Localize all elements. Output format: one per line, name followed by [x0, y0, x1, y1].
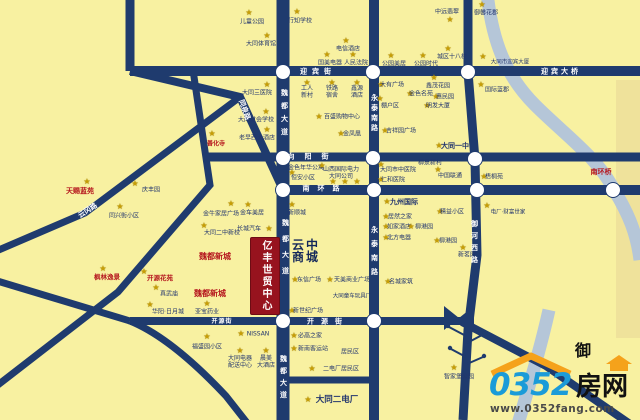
poi-label: 城区十八校: [437, 53, 467, 60]
poi-label: NISSAN: [247, 330, 270, 337]
poi-star-icon: ★: [245, 9, 252, 17]
poi-label: 华阳·日月城: [152, 308, 184, 315]
street-name-label: 魏都大道: [282, 219, 289, 283]
poi-label: 中国联通: [438, 172, 462, 179]
poi-star-icon: ★: [304, 396, 311, 404]
poi-star-icon: ★: [263, 32, 270, 40]
poi-star-icon: ★: [446, 16, 453, 24]
street-name-label: 迎宾街: [300, 69, 336, 76]
poi-label: 开源花苑: [147, 275, 173, 283]
city-map[interactable]: ★儿童公园★行知学校★大同体育馆★电信酒店★国美电器★人民法院★公园美居★公园时…: [0, 0, 640, 420]
street-name-label: 南环路: [303, 186, 348, 193]
poi-label: 魏都新城: [194, 289, 226, 299]
poi-label: 名城家筑: [389, 278, 413, 285]
poi-label: 鑫茂花园: [426, 82, 450, 89]
poi-label: 儿童公园: [240, 18, 264, 25]
poi-label: 大同市迎宾大厦: [491, 60, 530, 67]
poi-star-icon: ★: [263, 81, 270, 89]
logo-url: www.0352fang.com: [490, 403, 615, 415]
poi-star-icon: ★: [407, 223, 414, 231]
poi-label: 亚宝药业: [195, 308, 219, 315]
poi-label: 梧桐苑: [485, 173, 503, 180]
poi-label: 新顺城: [288, 209, 306, 216]
poi-star-icon: ★: [479, 53, 486, 61]
poi-label: 智家堡公园: [444, 373, 474, 380]
poi-star-icon: ★: [208, 130, 215, 138]
poi-label: 大同童车玩具厂: [333, 294, 372, 301]
poi-label: 同兴街小区: [109, 212, 139, 219]
poi-label: 人民法院: [344, 59, 368, 66]
poi-label: 新世纪广场: [293, 307, 323, 314]
poi-star-icon: ★: [323, 51, 330, 59]
poi-star-icon: ★: [419, 52, 426, 60]
poi-star-icon: ★: [326, 276, 333, 284]
street-name-label: 迎宾大桥: [541, 69, 581, 76]
yunzhong-mall-label: 云中商城: [292, 239, 320, 263]
poi-label: 大同三医院: [242, 89, 272, 96]
poi-label: 大同二中新校: [204, 229, 240, 236]
poi-star-icon: ★: [99, 265, 106, 273]
poi-star-icon: ★: [152, 284, 159, 292]
logo-word: 房网: [576, 374, 628, 400]
street-name-label: 永泰南路: [371, 226, 378, 282]
poi-label: 仁和医院: [381, 176, 405, 183]
poi-label: 真武庙: [160, 290, 178, 297]
poi-star-icon: ★: [450, 364, 457, 372]
poi-star-icon: ★: [308, 365, 315, 373]
poi-star-icon: ★: [227, 200, 234, 208]
poi-star-icon: ★: [483, 202, 490, 210]
poi-star-icon: ★: [203, 300, 210, 308]
poi-label: 大有广场: [380, 81, 404, 88]
poi-label: 金凤凰: [343, 130, 361, 137]
poi-label: 天美商业广场: [334, 276, 370, 283]
poi-label: 二电厂居民区: [323, 365, 359, 372]
poi-label: 北方电器: [387, 234, 411, 241]
poi-star-icon: ★: [290, 332, 297, 340]
poi-star-icon: ★: [203, 333, 210, 341]
logo-number: 0352: [489, 370, 571, 401]
poi-star-icon: ★: [237, 330, 244, 338]
poi-star-icon: ★: [430, 74, 437, 82]
poi-label: 金牛家居广场: [203, 210, 239, 217]
street-name-label: 魏都大道: [281, 89, 288, 141]
poi-label: 电厂·财富世家: [491, 210, 526, 217]
poi-star-icon: ★: [262, 108, 269, 116]
poi-star-icon: ★: [290, 345, 297, 353]
poi-star-icon: ★: [387, 52, 394, 60]
poi-label: 行知学校: [288, 17, 312, 24]
poi-label: 大同体育馆: [246, 40, 276, 47]
landmark-label: 亿丰世贸中心: [260, 240, 270, 312]
poi-star-icon: ★: [353, 178, 360, 186]
poi-label: 精益小区: [440, 208, 464, 215]
poi-label: 居民区: [341, 348, 359, 355]
poi-label: 福盛园小区: [192, 343, 222, 350]
poi-star-icon: ★: [293, 8, 300, 16]
poi-label: 国际蓝郡: [485, 86, 509, 93]
poi-label: 居然之家: [388, 213, 412, 220]
poi-label: 魏都新城: [199, 252, 231, 262]
poi-label: 新南客运站: [298, 345, 328, 352]
poi-label: 九州国际: [390, 198, 418, 206]
poi-star-icon: ★: [131, 180, 138, 188]
poi-label: 恒安小区: [291, 174, 315, 181]
poi-star-icon: ★: [477, 81, 484, 89]
poi-star-icon: ★: [349, 51, 356, 59]
poi-star-icon: ★: [265, 225, 272, 233]
poi-label: 吉祥园广场: [386, 127, 416, 134]
poi-label: 公园美居: [382, 60, 406, 67]
poi-label: 大同电器 配送中心: [228, 355, 252, 369]
street-name-label: 开源街: [307, 319, 349, 326]
poi-label: 枫林逸景: [94, 274, 120, 282]
poi-label: 大同一中: [441, 142, 469, 150]
poi-label: 棚户区: [381, 102, 399, 109]
poi-label: 东信广场: [297, 276, 321, 283]
poi-label: 大同市中医院: [380, 166, 416, 173]
poi-star-icon: ★: [342, 37, 349, 45]
poi-label: 金色名苑: [409, 90, 433, 97]
poi-label: 百盛购物中心: [324, 113, 360, 120]
poi-star-icon: ★: [444, 45, 451, 53]
street-name-label: 魏都大道: [280, 355, 287, 403]
poi-label: 惠民园: [436, 93, 454, 100]
poi-label: 柳港园: [439, 237, 457, 244]
poi-star-icon: ★: [315, 113, 322, 121]
poi-label: 铁路 宿舍: [326, 85, 338, 99]
poi-label: 金车美居: [240, 209, 264, 216]
poi-label: 中远翡翠: [435, 8, 459, 15]
poi-label: 柳港园: [415, 223, 433, 230]
poi-label: 南环桥: [591, 168, 612, 176]
poi-label: 庆丰园: [142, 186, 160, 193]
poi-star-icon: ★: [83, 178, 90, 186]
poi-label: 善化寺: [207, 140, 225, 147]
poi-label: 公园时代: [414, 60, 438, 67]
street-name-label: 向阳街: [288, 154, 339, 161]
poi-label: 天赐蓝苑: [66, 187, 94, 195]
poi-label: 鑫源 酒店: [351, 85, 363, 99]
poi-label: 御馨花郡: [474, 9, 498, 16]
poi-star-icon: ★: [262, 347, 269, 355]
street-name-label: 开源街: [211, 319, 232, 325]
site-logo: 0352 房网 www.0352fang.com: [486, 352, 640, 416]
yifeng-world-trade-center-box[interactable]: 亿丰世贸中心: [250, 237, 280, 315]
poi-label: 国美电器: [318, 59, 342, 66]
street-name-label: 御河西路: [471, 220, 478, 268]
poi-star-icon: ★: [116, 203, 123, 211]
poi-star-icon: ★: [478, 1, 485, 9]
street-name-label: 永泰南路: [371, 94, 378, 134]
poi-label: 老早西大酒店: [239, 134, 275, 141]
street-name-label: 云冈路: [77, 202, 98, 219]
poi-label: 长城汽车: [237, 225, 261, 232]
poi-label: 工人 新村: [301, 85, 313, 99]
poi-star-icon: ★: [263, 126, 270, 134]
poi-label: 明发大厦: [426, 102, 450, 109]
poi-star-icon: ★: [236, 347, 243, 355]
poi-star-icon: ★: [244, 201, 251, 209]
poi-label: 大同二电厂: [316, 395, 359, 405]
poi-label: 必高之家: [298, 332, 322, 339]
poi-label: 晨美 大酒店: [257, 355, 275, 369]
poi-star-icon: ★: [288, 201, 295, 209]
